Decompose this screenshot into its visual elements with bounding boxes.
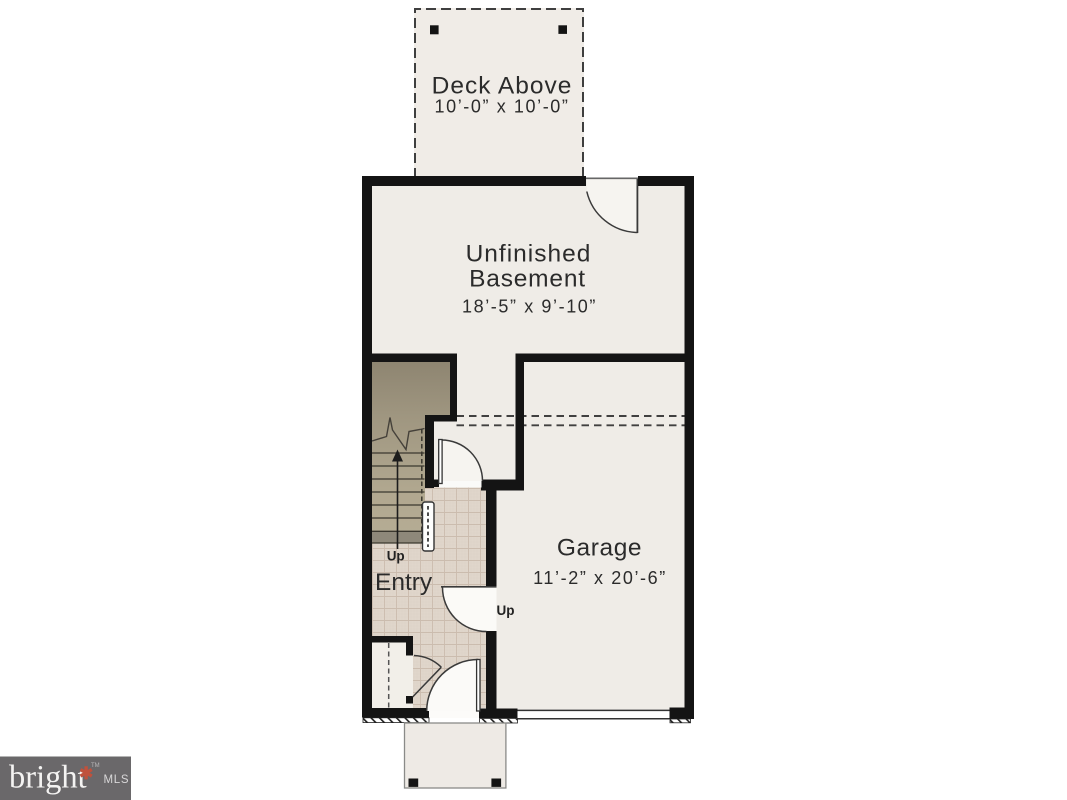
- svg-text:Basement: Basement: [469, 266, 586, 293]
- svg-text:Up: Up: [387, 549, 405, 564]
- svg-text:18’-5” x 9’-10”: 18’-5” x 9’-10”: [462, 297, 597, 317]
- svg-text:Up: Up: [497, 603, 515, 618]
- svg-text:MLS: MLS: [104, 774, 130, 786]
- svg-text:bright: bright: [9, 760, 87, 796]
- svg-text:10’-0” x 10’-0”: 10’-0” x 10’-0”: [434, 97, 569, 117]
- svg-text:Deck Above: Deck Above: [432, 73, 573, 100]
- svg-text:Entry: Entry: [375, 569, 433, 596]
- svg-text:Unfinished: Unfinished: [466, 241, 592, 268]
- svg-text:Garage: Garage: [557, 535, 642, 562]
- svg-text:11’-2” x 20’-6”: 11’-2” x 20’-6”: [533, 568, 667, 588]
- svg-text:TM: TM: [91, 763, 100, 769]
